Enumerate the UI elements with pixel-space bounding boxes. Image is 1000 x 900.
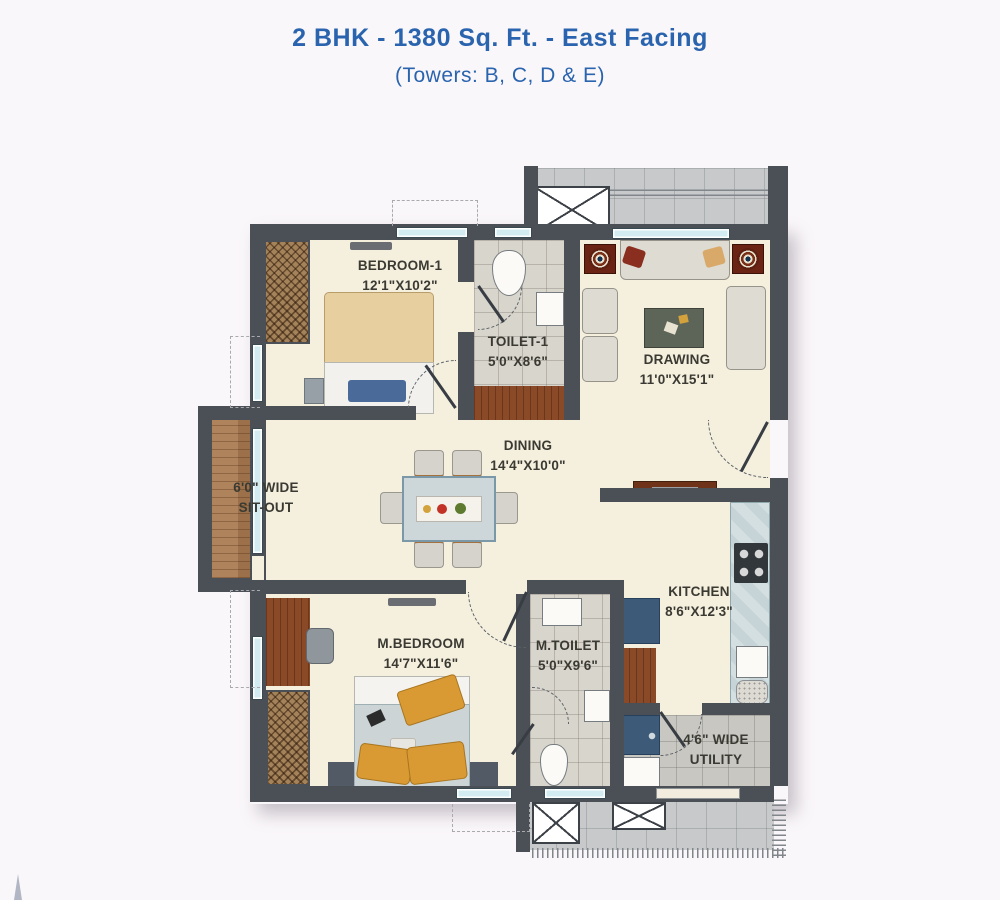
dining-label: DINING 14'4"X10'0" [458, 436, 598, 477]
mbed-pillow-right [406, 741, 468, 786]
wall-right-upper [770, 240, 788, 420]
wall-toilet1-drawing [564, 224, 580, 420]
mtoilet-washbasin [542, 598, 582, 626]
utility-unit [622, 757, 660, 787]
mbed-pillow-left [356, 742, 414, 785]
mbedroom-dresser [266, 598, 310, 686]
coffee-table [644, 308, 704, 348]
plate-icon [423, 505, 431, 513]
speaker-left [584, 244, 616, 274]
wall-sitout-left [198, 406, 212, 592]
kitchen-drainboard [736, 680, 768, 704]
kitchen-sink [736, 646, 768, 678]
drawing-label: DRAWING 11'0"X15'1" [610, 350, 744, 391]
plate-icon [455, 503, 466, 514]
dining-name: DINING [458, 436, 598, 456]
speaker-cone-icon [589, 248, 611, 270]
corridor-railing-bottom [532, 848, 784, 858]
speaker-right [732, 244, 764, 274]
duct-shaft-bottom-left [532, 802, 580, 844]
dining-table [402, 476, 496, 542]
sitout-line2: SIT-OUT [214, 498, 318, 518]
toilet1-name: TOILET-1 [470, 332, 566, 352]
table-runner [416, 496, 482, 522]
utility-opening-bottom [656, 788, 740, 799]
dining-chair [414, 540, 444, 568]
toilet1-dims: 5'0"X8'6" [470, 352, 566, 372]
stove-icon [734, 543, 768, 583]
mbedroom-chair [306, 628, 334, 664]
mbedroom-wardrobe [266, 690, 310, 786]
dashed-projection-top [392, 200, 478, 226]
bedroom1-shelf [350, 242, 392, 250]
wall-utility-top-right [702, 703, 770, 715]
utility-line1: 4'6" WIDE [664, 730, 768, 750]
bed-blanket [324, 292, 434, 364]
mtoilet-geyser [584, 690, 610, 722]
mbedroom-label: M.BEDROOM 14'7"X11'6" [346, 634, 496, 675]
dining-chair [414, 450, 444, 478]
mbedroom-shelf [388, 598, 436, 606]
mbedroom-dims: 14'7"X11'6" [346, 654, 496, 674]
bedroom1-dims: 12'1"X10'2" [330, 276, 470, 296]
bedroom1-label: BEDROOM-1 12'1"X10'2" [330, 256, 470, 297]
sitout-line1: 6'0" WIDE [214, 478, 318, 498]
foyer-wood-floor [474, 386, 564, 420]
mtoilet-window-bottom [544, 788, 606, 799]
bedroom1-name: BEDROOM-1 [330, 256, 470, 276]
bed-pillow-blue [348, 380, 406, 402]
kitchen-name: KITCHEN [650, 582, 748, 602]
toilet1-window-top [494, 227, 532, 238]
north-arrow-icon [14, 874, 22, 900]
dashed-projection-bottom [452, 804, 530, 832]
washing-machine [622, 715, 660, 755]
table-decor [678, 314, 688, 324]
page-subtitle: (Towers: B, C, D & E) [0, 64, 1000, 88]
armchair-1 [582, 288, 618, 334]
duct-shaft-bottom-mid [612, 802, 666, 830]
drawing-window-top [612, 228, 730, 239]
bedroom1-window-top [396, 227, 468, 238]
wall-mtoilet-kitchen [610, 594, 624, 786]
sitout-label: 6'0" WIDE SIT-OUT [214, 478, 318, 519]
mtoilet-label: M.TOILET 5'0"X9'6" [520, 636, 616, 677]
toilet1-washbasin [536, 292, 564, 326]
floor-plan: 2 BHK - 1380 Sq. Ft. - East Facing (Towe… [0, 0, 1000, 900]
page-title: 2 BHK - 1380 Sq. Ft. - East Facing [0, 24, 1000, 53]
utility-label: 4'6" WIDE UTILITY [664, 730, 768, 771]
dining-chair [452, 540, 482, 568]
mbedroom-window-bottom [456, 788, 512, 799]
wall-utility-top-left [624, 703, 660, 715]
bedside-table [304, 378, 324, 404]
drawing-name: DRAWING [610, 350, 744, 370]
drawing-dims: 11'0"X15'1" [610, 370, 744, 390]
utility-line2: UTILITY [664, 750, 768, 770]
wall-mtoilet-top [527, 580, 624, 594]
bedroom1-wardrobe [264, 240, 310, 344]
dining-dims: 14'4"X10'0" [458, 456, 598, 476]
wall-right-lower [770, 478, 788, 786]
sitout-door-gap [252, 556, 264, 580]
toilet1-label: TOILET-1 5'0"X8'6" [470, 332, 566, 373]
speaker-cone-icon [737, 248, 759, 270]
dashed-projection-left1 [230, 336, 260, 408]
corridor-railing-right [772, 798, 786, 856]
kitchen-label: KITCHEN 8'6"X12'3" [650, 582, 748, 623]
dashed-projection-left2 [230, 590, 260, 688]
wall-mbedroom-top [266, 580, 466, 594]
kitchen-dims: 8'6"X12'3" [650, 602, 748, 622]
kitchen-cabinet [622, 648, 656, 710]
mtoilet-name: M.TOILET [520, 636, 616, 656]
mbedroom-name: M.BEDROOM [346, 634, 496, 654]
table-decor [664, 321, 679, 335]
wall-bedroom1-bottom [266, 406, 416, 420]
plate-icon [437, 504, 447, 514]
mtoilet-dims: 5'0"X9'6" [520, 656, 616, 676]
wall-kitchen-top [600, 488, 770, 502]
